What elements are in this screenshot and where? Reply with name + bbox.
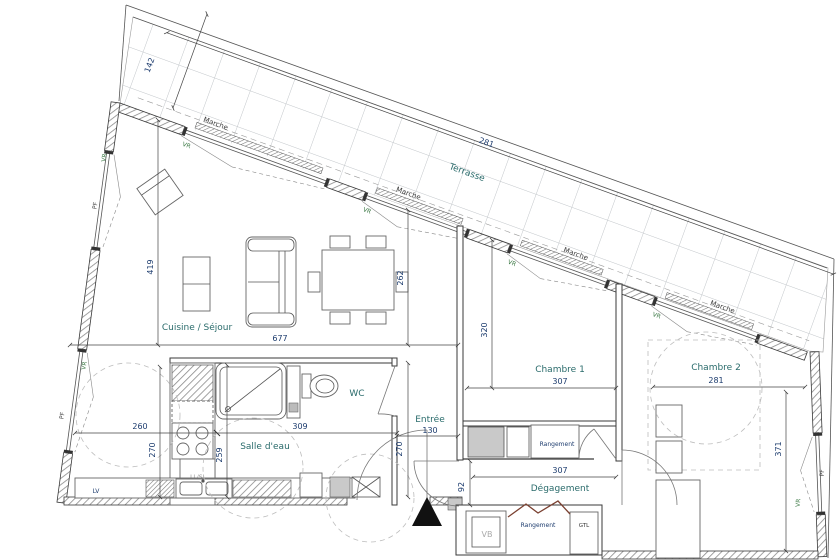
wall-salle-eau-entree [392, 416, 397, 505]
nightstand [656, 405, 682, 437]
dim-chambre1-width: 307 [552, 377, 567, 386]
worktop-hatch [233, 480, 291, 497]
vr-label: VR [100, 153, 108, 162]
dim-degagement-width: 307 [552, 466, 567, 475]
dining-chair [308, 272, 320, 292]
kitchen-sink [176, 479, 232, 498]
dining-chair [366, 236, 386, 248]
dim-entree-depth: 270 [395, 441, 404, 456]
dim-degagement-height: 92 [457, 482, 466, 492]
vestibule: VB Rangement GTL [448, 498, 602, 555]
dining-chair [330, 236, 350, 248]
dishwasher-label: LV [93, 488, 101, 495]
pf-label: PF [58, 411, 66, 420]
coffee-table [183, 257, 210, 311]
room-label-cuisine-sejour: Cuisine / Séjour [162, 322, 233, 333]
right-outer-boundary [828, 259, 834, 558]
vr-label: VR [507, 259, 517, 268]
chambre1-door-arc [579, 429, 594, 459]
vr-label: VR [362, 206, 372, 215]
sofa [246, 237, 296, 327]
dim-sejour-depth: 262 [396, 270, 405, 285]
closet-box [468, 427, 504, 457]
gtl-box: GTL [570, 512, 598, 554]
vb-duct: VB [466, 511, 506, 553]
vr-label: VR [795, 498, 803, 507]
bed [656, 480, 700, 558]
floor-plan: 142 281 Terrasse Marche VR [0, 0, 840, 560]
terrace: 142 [119, 5, 834, 558]
shower [216, 363, 286, 419]
wall-chambre1-chambre2 [616, 284, 622, 461]
dim-entree-width: 130 [422, 426, 437, 435]
washbasin [287, 366, 300, 418]
dim-cuisine-depth: 270 [148, 442, 157, 457]
duct-box [352, 477, 380, 497]
dining-chair [330, 312, 350, 324]
dining-table [308, 236, 408, 324]
dim-sejour-height: 419 [146, 259, 155, 274]
armchair [137, 169, 183, 215]
turning-circle [76, 363, 180, 467]
bathroom-cabinets [300, 473, 380, 497]
rangement-label: Rangement [540, 441, 575, 448]
closet-box [507, 427, 529, 457]
kitchen-cabinet [172, 401, 213, 423]
fridge-hatch [172, 365, 213, 401]
room-label-wc: WC [349, 389, 364, 399]
vr-label: VR [652, 311, 662, 320]
bottom-wall-right [602, 551, 818, 559]
room-label-salle-eau: Salle d'eau [240, 442, 290, 452]
dining-chair [366, 312, 386, 324]
rangement-label: Rangement [521, 522, 556, 529]
wall-sejour-chambre1 [457, 226, 463, 460]
wc-door-leaf [378, 366, 395, 414]
dim-sejour-width: 677 [272, 334, 287, 343]
wall-sejour-salle-eau [170, 358, 397, 363]
room-label-entree: Entrée [415, 414, 445, 425]
dim-chambre2-width: 281 [708, 376, 723, 385]
gtl-label: GTL [579, 523, 590, 529]
wc-door-arc [378, 414, 395, 416]
vr-label: VR [181, 141, 191, 150]
vr-label: VR [80, 361, 88, 370]
right-wall [796, 352, 827, 558]
dim-chambre1-height: 320 [480, 322, 489, 337]
chambre1-door-leaf [594, 429, 616, 459]
room-label-chambre2: Chambre 2 [691, 363, 741, 373]
room-label-chambre1: Chambre 1 [535, 365, 585, 375]
dim-salle-eau-width: 309 [292, 422, 307, 431]
left-wall [57, 102, 133, 505]
dim-chambre2-height: 371 [774, 441, 783, 456]
pf-label: PF [819, 469, 826, 477]
toilet [302, 374, 338, 398]
nightstand [656, 441, 682, 473]
window-left-1 [91, 150, 126, 252]
dim-salle-eau-height: 259 [215, 447, 224, 462]
vb-label: VB [482, 530, 493, 539]
chambre1-closet: Rangement [468, 425, 616, 459]
dim-cuisine-width: 260 [132, 422, 147, 431]
room-label-degagement: Dégagement [531, 483, 590, 494]
